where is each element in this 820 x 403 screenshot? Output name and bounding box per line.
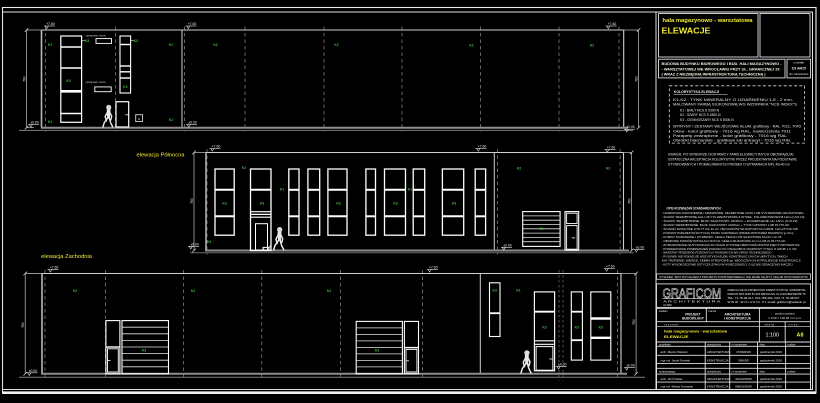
svg-text:K3: K3 [134, 39, 138, 43]
svg-text:od 1990: od 1990 [663, 304, 672, 307]
svg-text:MALOWANY FARBĄ SILIKONOWĄ WG W: MALOWANY FARBĄ SILIKONOWĄ WG WZORNIKA "N… [673, 103, 798, 107]
svg-text:K2: K2 [469, 44, 473, 48]
svg-text:mgr inż. Maciej Tomasiak: mgr inż. Maciej Tomasiak [661, 384, 694, 388]
svg-text:nr uprawnień: nr uprawnień [732, 342, 748, 346]
svg-text:+7.60: +7.60 [606, 265, 615, 269]
svg-text:760: 760 [22, 76, 26, 82]
svg-text:K2: K2 [73, 289, 77, 293]
svg-text:KOLORYSTYKA ELEWACJI: KOLORYSTYKA ELEWACJI [674, 90, 719, 94]
svg-text:K3: K3 [493, 289, 497, 293]
svg-text:K2: K2 [590, 44, 594, 48]
svg-text:elewacja Północna: elewacja Północna [137, 152, 186, 158]
svg-text:specjalność: specjalność [707, 342, 722, 346]
svg-text:K3: K3 [123, 85, 127, 89]
svg-text:podpis: podpis [788, 370, 797, 374]
svg-text:K1: K1 [207, 240, 211, 244]
svg-text:K3: K3 [575, 326, 579, 330]
svg-text:760: 760 [21, 322, 25, 328]
svg-text:±0.00: ±0.00 [29, 369, 38, 373]
svg-text:r y s u n e k :: r y s u n e k : [664, 323, 680, 327]
svg-text:K1: K1 [516, 289, 520, 293]
svg-text:±0.00: ±0.00 [626, 364, 635, 368]
svg-text:mgr inż. Jacek Grzelak: mgr inż. Jacek Grzelak [661, 358, 691, 362]
svg-text:K2: K2 [517, 167, 521, 171]
svg-text:K3: K3 [599, 326, 603, 330]
svg-text:poziom parteru: poziom parteru [775, 312, 795, 316]
svg-text:K3: K3 [260, 202, 264, 206]
svg-text:Obróbki blacharskie - grafitow: Obróbki blacharskie - grafitowe lub antr… [673, 139, 791, 143]
svg-text:data: data [760, 370, 766, 374]
svg-text:K2: K2 [213, 43, 217, 47]
svg-text:47/06/DSW: 47/06/DSW [736, 350, 751, 354]
svg-text:hala magazynowo - warsztatowa: hala magazynowo - warsztatowa [664, 329, 728, 334]
svg-text:A8: A8 [797, 333, 804, 339]
svg-text:±0.00: ±0.00 [503, 243, 512, 247]
svg-text:2/3 AM15: 2/3 AM15 [792, 67, 806, 71]
svg-text:październik 2019: październik 2019 [760, 350, 782, 354]
svg-text:760: 760 [627, 198, 631, 204]
svg-text:( WRAZ Z NIEZBĘDNĄ INFRASTRUKT: ( WRAZ Z NIEZBĘDNĄ INFRASTRUKTURĄ TECHNI… [662, 73, 767, 77]
svg-text:W W W . W O L A N I N . P L: W W W . W O L A N I N . P L email: grafi… [728, 300, 806, 304]
svg-text:s k a l a: s k a l a [765, 323, 775, 327]
svg-text:K3: K3 [375, 349, 379, 353]
svg-text:+7.60: +7.60 [429, 266, 438, 270]
svg-text:+7.60: +7.60 [212, 145, 221, 149]
svg-text:obr. Strachowice: obr. Strachowice [789, 72, 809, 76]
svg-text:arch. Piotr Pielas: arch. Piotr Pielas [661, 377, 683, 381]
svg-text:K2: K2 [606, 167, 610, 171]
svg-text:1:100: 1:100 [766, 332, 780, 338]
svg-text:KONSTRUKCJA: KONSTRUKCJA [707, 358, 729, 362]
svg-text:K3: K3 [142, 349, 146, 353]
svg-text:A R C H I T E K T U R A: A R C H I T E K T U R A [663, 300, 720, 304]
svg-text:K3: K3 [66, 79, 70, 83]
svg-text:K1: K1 [169, 118, 173, 122]
svg-text:K3: K3 [222, 202, 226, 206]
svg-text:I KONSTRUKCJA: I KONSTRUKCJA [724, 317, 752, 321]
svg-text:n r r y s .: n r r y s . [789, 323, 800, 327]
svg-text:projektant: projektant [659, 342, 671, 346]
svg-text:696/01/DSW: 696/01/DSW [735, 384, 752, 388]
svg-text:K3: K3 [539, 227, 543, 231]
svg-text:3/96/DŚ: 3/96/DŚ [738, 357, 749, 362]
svg-text:K1: K1 [48, 43, 52, 47]
svg-text:ARCHITEKTURA: ARCHITEKTURA [707, 377, 730, 381]
svg-text:elewacja Zachodnia: elewacja Zachodnia [41, 254, 93, 260]
svg-text:±0.00: ±0.00 [188, 121, 197, 125]
svg-text:±0.00: ±0.00 [636, 246, 645, 250]
svg-text:K3: K3 [542, 326, 546, 330]
svg-text:- WARSZTATOWEJ WE WROCŁAWIU PR: - WARSZTATOWEJ WE WROCŁAWIU PRZY UL. GRA… [662, 67, 780, 71]
svg-text:OTYNKOWANYCH I POMALOWANYCH PR: OTYNKOWANYCH I POMALOWANYCH PRÓBEK O WYM… [668, 162, 790, 167]
svg-text:nr działki: nr działki [793, 61, 804, 65]
svg-text:K1: K1 [242, 166, 246, 170]
svg-text:+7.60: +7.60 [46, 22, 55, 26]
svg-text:październik 2019: październik 2019 [760, 377, 782, 381]
svg-text:K1: K1 [280, 188, 284, 192]
svg-text:BUDOWLANY: BUDOWLANY [682, 317, 705, 321]
svg-text:CERTA VERT. WZÓR: CERTA VERT. WZÓR [86, 81, 107, 84]
svg-text:+7.60: +7.60 [608, 22, 617, 26]
svg-text:ARCHITEKTURA: ARCHITEKTURA [707, 350, 730, 354]
svg-text:AGENCJA USŁUG PROJEKTOWO INWES: AGENCJA USŁUG PROJEKTOWO INWESTYCYJNYCH … [728, 288, 806, 292]
svg-text:+7.60: +7.60 [50, 266, 59, 270]
svg-text:±0.00: ±0.00 [190, 242, 199, 246]
svg-text:Parapety zewnętrzne - kolor: Parapety zewnętrzne - kolor grafitowy - … [673, 134, 787, 138]
svg-text:UWAGA: PO WYBORZE DOSTAWCY F: UWAGA: PO WYBORZE DOSTAWCY FARB ELEWACYJ… [668, 152, 794, 156]
svg-text:KONSTRUKCJA: KONSTRUKCJA [707, 384, 729, 388]
svg-text:arch. Marcin Wolanin: arch. Marcin Wolanin [661, 350, 688, 354]
svg-text:K3 - CIEMNOSZARY NCS S 8000-: K3 - CIEMNOSZARY NCS S 8000-N [680, 118, 734, 122]
svg-text:OSTATECZNA AKCEPTACJA KOLORYST: OSTATECZNA AKCEPTACJA KOLORYSTYKI PRZEZ … [668, 157, 797, 161]
svg-text:Okna - kolor grafitowy - 701: Okna - kolor grafitowy - 7016 wg RAL, na… [673, 129, 791, 133]
svg-text:K1 - BIAŁY NCS S 0300-N: K1 - BIAŁY NCS S 0300-N [680, 109, 720, 113]
svg-text:specjalność: specjalność [707, 370, 722, 374]
svg-text:K3: K3 [452, 202, 456, 206]
svg-text:± 0.00 = 120.60 m.n.p.m.: ± 0.00 = 120.60 m.n.p.m. [768, 316, 802, 320]
svg-text:nr uprawnień: nr uprawnień [732, 370, 748, 374]
svg-text:K2 - SZARY NCS S 4500-N: K2 - SZARY NCS S 4500-N [680, 113, 721, 117]
svg-text:październik 2019: październik 2019 [760, 358, 782, 362]
svg-text:podpis: podpis [788, 342, 797, 346]
svg-text:K1: K1 [48, 120, 52, 124]
svg-text:±0.00: ±0.00 [626, 125, 635, 129]
svg-text:K1: K1 [408, 188, 412, 192]
svg-text:+7.60: +7.60 [188, 22, 197, 26]
svg-text:760: 760 [190, 198, 194, 204]
svg-text:sprawdzający: sprawdzający [659, 370, 676, 374]
svg-text:WITRYNY I ZESTAWY WEJŚCIOWE AL: WITRYNY I ZESTAWY WEJŚCIOWE ALUM. grafit… [673, 123, 801, 128]
svg-text:branża: branża [709, 310, 717, 313]
svg-text:K1-K2 : TYNK MINERALNY O UZIAR: K1-K2 : TYNK MINERALNY O UZIARNIENIU 1,5… [673, 98, 793, 102]
svg-text:K1: K1 [169, 43, 173, 47]
svg-text:ELEWACJE: ELEWACJE [664, 334, 689, 339]
svg-text:BUDOWA BUDYNKU BIUROWEGO I BUD: BUDOWA BUDYNKU BIUROWEGO I BUD. HALI MAG… [662, 62, 783, 66]
svg-text:K3: K3 [393, 202, 397, 206]
svg-text:+7.60: +7.60 [478, 145, 487, 149]
svg-text:K3: K3 [336, 202, 340, 206]
svg-text:±0.00: ±0.00 [558, 363, 567, 367]
svg-text:391/01/DSW: 391/01/DSW [735, 377, 752, 381]
svg-text:CERTA VERT. WZÓR: CERTA VERT. WZÓR [86, 34, 107, 37]
svg-text:760: 760 [634, 76, 638, 82]
svg-text:760: 760 [632, 319, 636, 325]
svg-text:K2: K2 [191, 289, 195, 293]
svg-text:K2: K2 [334, 43, 338, 47]
svg-text:hala magazynowo - warsztatowa: hala magazynowo - warsztatowa [663, 18, 753, 24]
svg-text:K3: K3 [85, 39, 89, 43]
svg-text:październik 2019: październik 2019 [760, 384, 782, 388]
svg-text:stadium: stadium [659, 310, 668, 313]
svg-text:TEL. 71 78-48-017, 601-783-2: TEL. 71 78-48-017, 601-783-292, FAX 71 7… [728, 296, 801, 300]
svg-text:±0.00: ±0.00 [30, 121, 39, 125]
svg-text:- KOTY WYSOKOŚCIOWE DOTYCZĄ S: - KOTY WYSOKOŚCIOWE DOTYCZĄ STANU WYKOŃC… [662, 262, 794, 267]
svg-text:+7.60: +7.60 [607, 146, 616, 150]
svg-text:K2: K2 [327, 289, 331, 293]
svg-text:ELEWACJE: ELEWACJE [662, 26, 711, 36]
svg-text:data: data [760, 342, 766, 346]
svg-text:OPIS ROZWIĄZAŃ STANDARDOWYCH:: OPIS ROZWIĄZAŃ STANDARDOWYCH: [667, 205, 722, 210]
